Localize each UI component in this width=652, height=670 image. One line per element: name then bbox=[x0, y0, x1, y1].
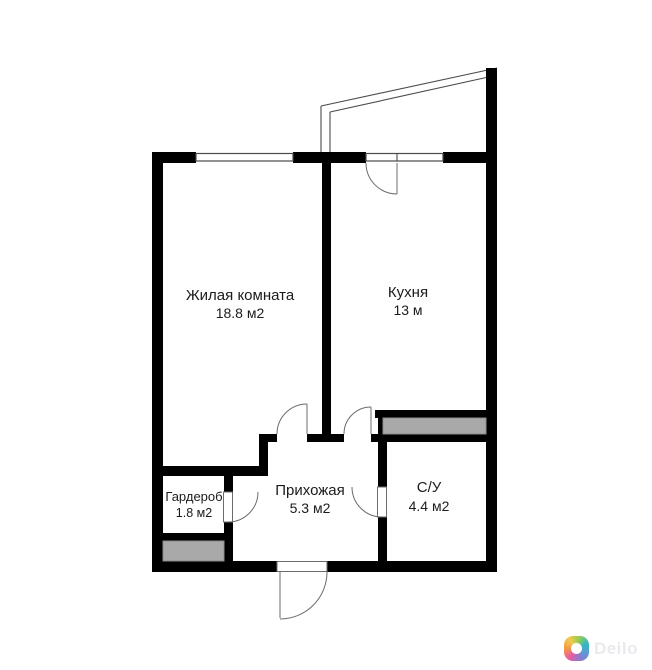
wall-wardrobe-bottom bbox=[163, 533, 233, 541]
wall-right-outer bbox=[486, 68, 497, 572]
door-bathroom bbox=[352, 487, 387, 517]
deilo-logo-icon bbox=[564, 636, 589, 661]
label-living-room-name: Жилая комната bbox=[186, 287, 295, 304]
door-swing-arc bbox=[280, 572, 327, 619]
door-swing-arc bbox=[277, 404, 307, 434]
balcony-outer-line bbox=[321, 68, 497, 106]
duct-shaft-wardrobe bbox=[163, 541, 224, 561]
watermark-brand-text: Deilo bbox=[594, 639, 638, 659]
label-kitchen-name: Кухня bbox=[388, 284, 428, 301]
label-wardrobe-name: Гардероб bbox=[165, 489, 222, 504]
wall-bathroom-left-lower bbox=[378, 517, 387, 561]
door-leaf bbox=[224, 492, 233, 522]
watermark: Deilo bbox=[564, 636, 638, 661]
wall-bottom-left bbox=[152, 561, 277, 572]
wall-top-middle bbox=[293, 152, 366, 163]
label-bathroom-name: С/У bbox=[417, 479, 442, 496]
door-living-room bbox=[277, 404, 307, 434]
door-threshold bbox=[277, 562, 327, 572]
wall-wardrobe-right-upper bbox=[224, 466, 233, 492]
wall-bottom-right bbox=[327, 561, 497, 572]
window-kitchen-balcony-block bbox=[366, 154, 443, 162]
label-kitchen-area: 13 м bbox=[393, 302, 422, 318]
doors bbox=[224, 163, 398, 619]
label-wardrobe-area: 1.8 м2 bbox=[176, 506, 212, 520]
label-hallway-name: Прихожая bbox=[275, 482, 345, 499]
wall-hallway-top-3 bbox=[331, 434, 344, 442]
wall-hallway-top-2 bbox=[307, 434, 322, 442]
wall-wardrobe-right-lower bbox=[224, 522, 233, 561]
door-swing-arc bbox=[366, 163, 397, 194]
door-kitchen bbox=[344, 407, 371, 434]
door-leaf bbox=[378, 487, 387, 517]
door-entrance bbox=[277, 562, 327, 620]
door-wardrobe bbox=[224, 492, 259, 522]
door-balcony-kitchen bbox=[366, 163, 397, 194]
wall-left-outer bbox=[152, 152, 163, 572]
balcony-inner-line bbox=[330, 76, 493, 112]
door-swing-arc bbox=[344, 407, 371, 434]
wall-kitchen-bottom bbox=[375, 410, 486, 418]
balcony-outline bbox=[321, 68, 497, 152]
wall-living-bottom bbox=[163, 466, 268, 476]
window-living-room bbox=[196, 154, 293, 162]
label-bathroom-area: 4.4 м2 bbox=[409, 498, 450, 514]
label-living-room-area: 18.8 м2 bbox=[216, 305, 265, 321]
label-hallway-area: 5.3 м2 bbox=[290, 500, 331, 516]
floor-plan-page: Жилая комната 18.8 м2 Кухня 13 м Гардеро… bbox=[0, 0, 652, 670]
floor-plan-canvas: Жилая комната 18.8 м2 Кухня 13 м Гардеро… bbox=[0, 0, 652, 670]
vent-shaft-kitchen-bathroom bbox=[383, 418, 486, 434]
room-labels: Жилая комната 18.8 м2 Кухня 13 м Гардеро… bbox=[165, 284, 449, 520]
wall-bathroom-top bbox=[371, 434, 486, 442]
wall-living-kitchen-divider bbox=[322, 163, 331, 442]
